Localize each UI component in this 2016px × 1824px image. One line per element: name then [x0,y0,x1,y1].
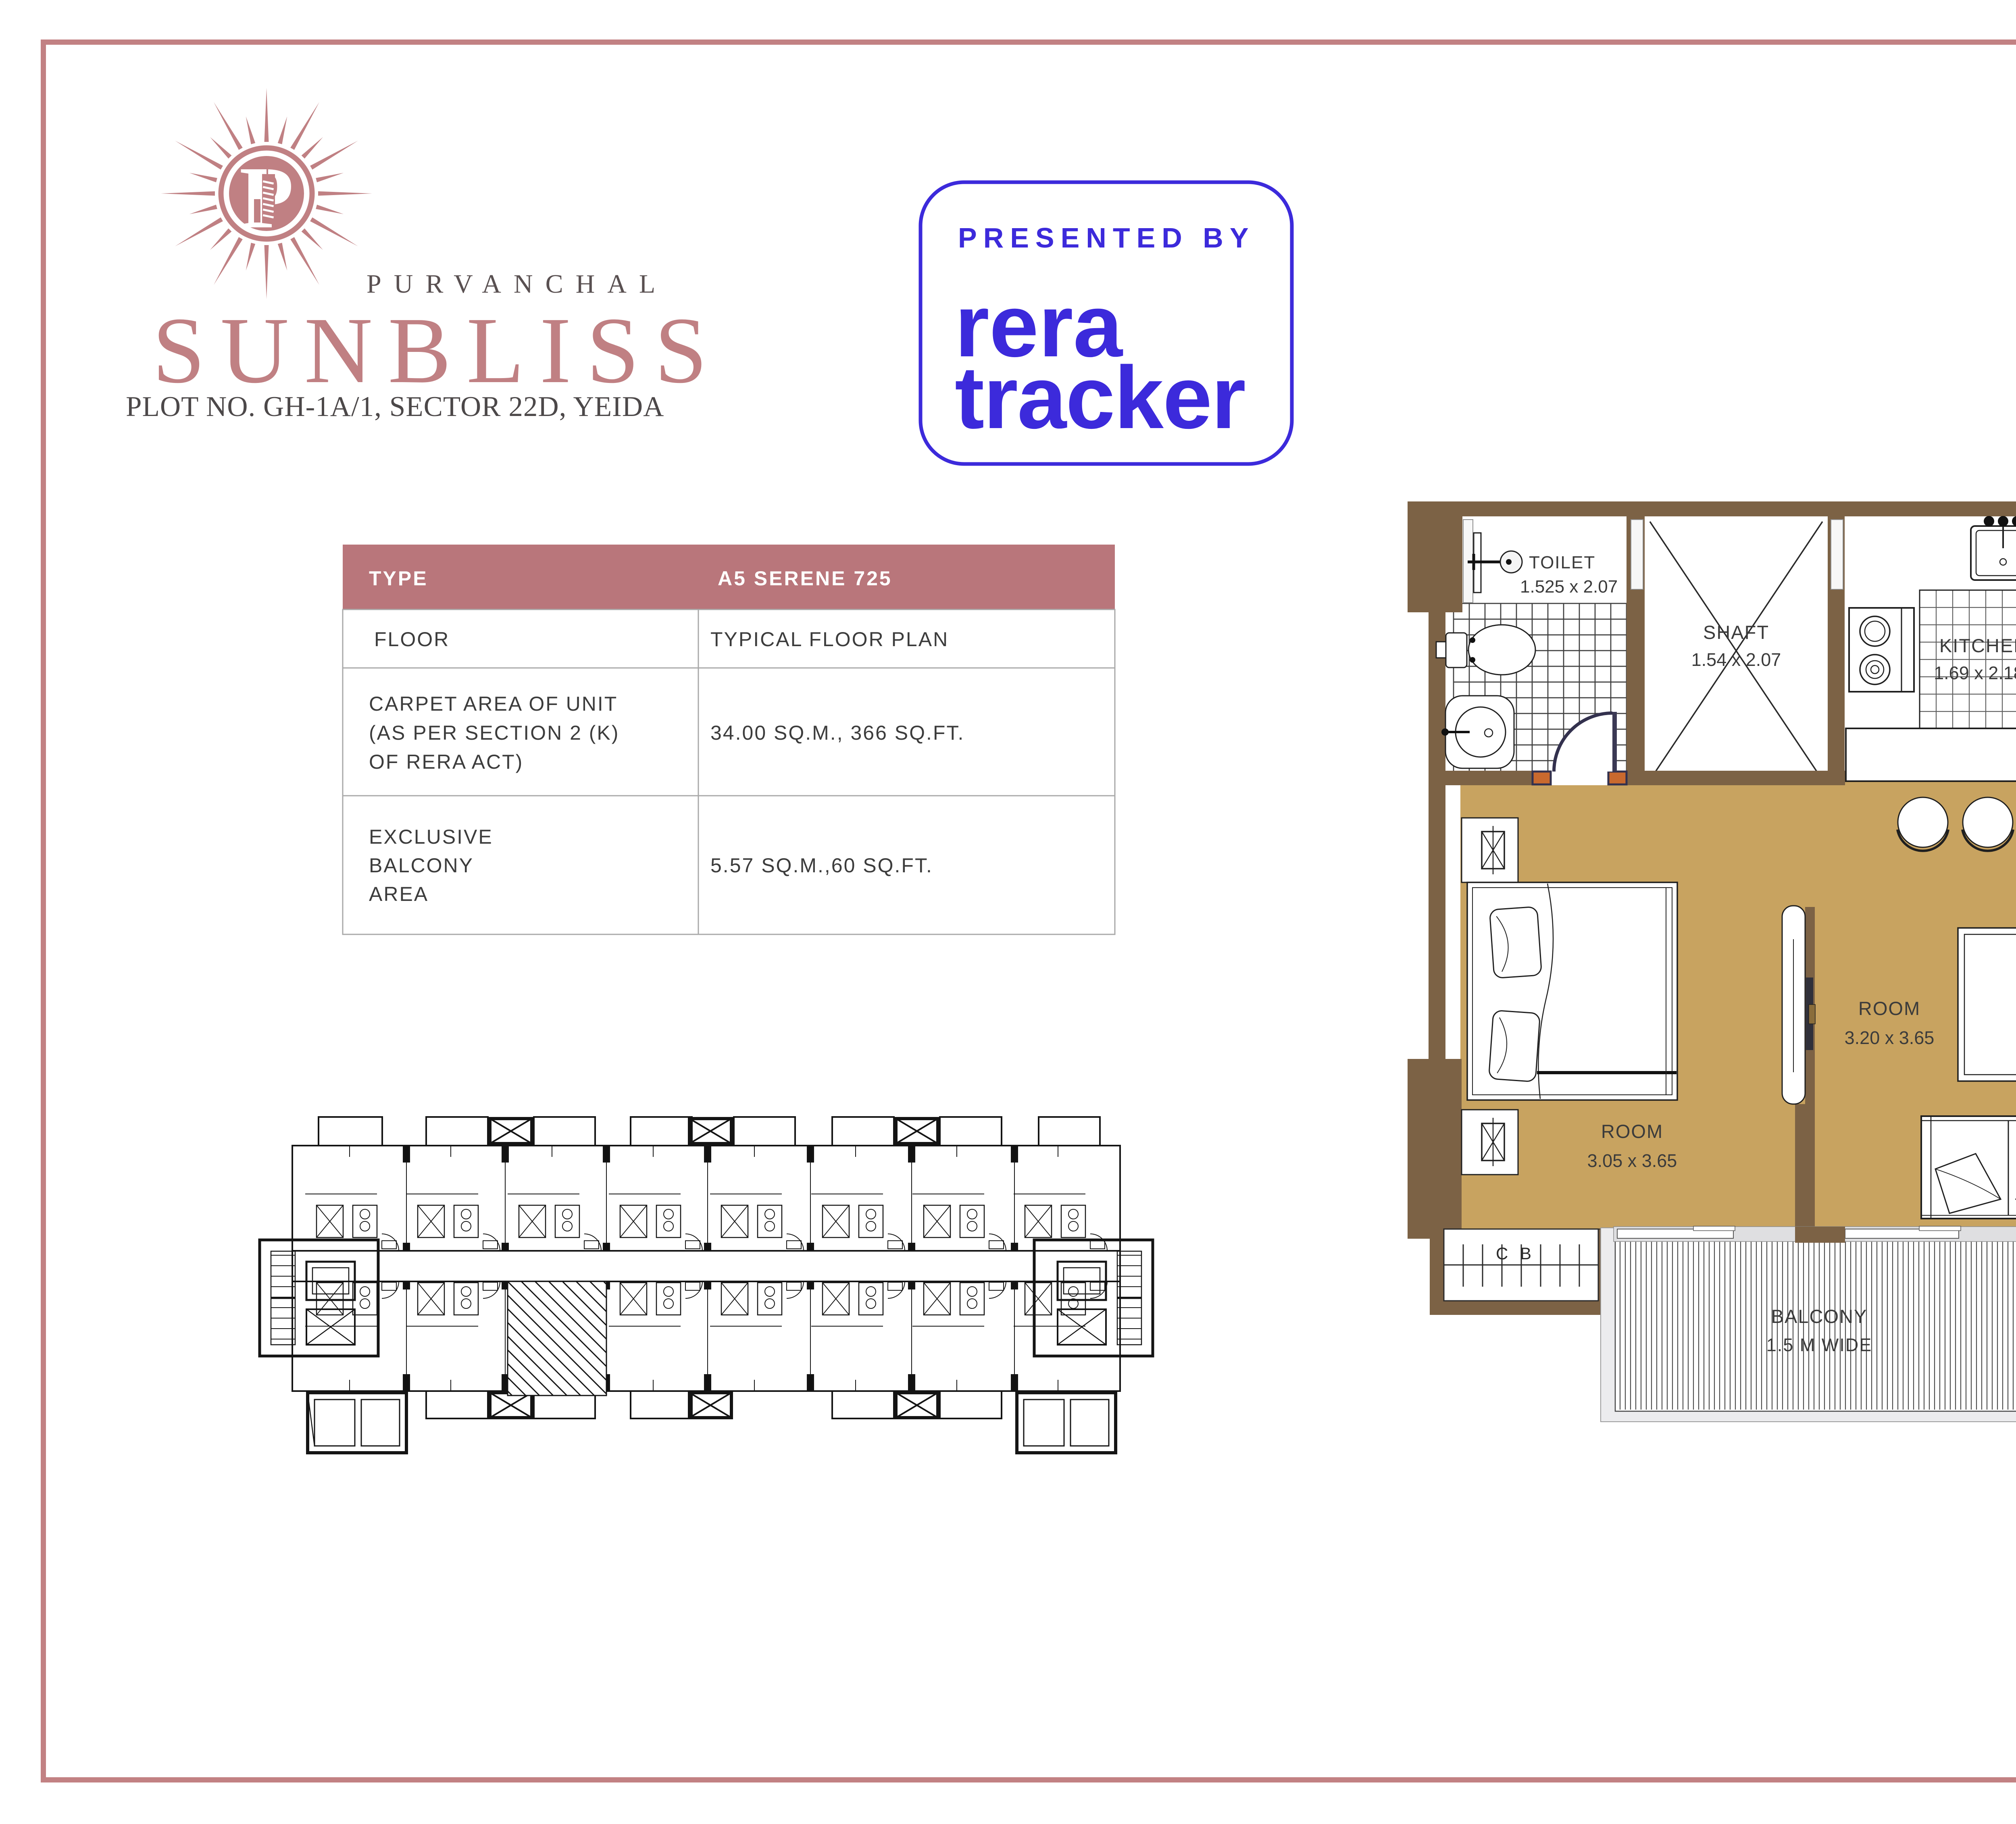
svg-text:5.57 SQ.M.,60 SQ.FT.: 5.57 SQ.M.,60 SQ.FT. [710,854,933,877]
svg-text:PRESENTED BY: PRESENTED BY [958,222,1255,254]
svg-text:EXCLUSIVE: EXCLUSIVE [369,826,493,848]
svg-text:TOILET: TOILET [1529,553,1595,572]
svg-text:TYPICAL FLOOR PLAN: TYPICAL FLOOR PLAN [710,628,949,651]
svg-text:ROOM: ROOM [1858,998,1920,1019]
svg-text:CARPET AREA OF UNIT: CARPET AREA OF UNIT [369,693,618,715]
svg-text:SUNBLISS: SUNBLISS [152,298,723,403]
svg-text:PLOT NO. GH-1A/1, SECTOR 22D,: PLOT NO. GH-1A/1, SECTOR 22D, YEIDA [126,391,664,422]
svg-text:OF RERA ACT): OF RERA ACT) [369,751,523,773]
svg-text:B: B [1520,1244,1531,1263]
svg-text:1.5 M WIDE: 1.5 M WIDE [1766,1335,1872,1355]
svg-text:1.69 x 2.185: 1.69 x 2.185 [1934,663,2016,683]
svg-text:3.20 x 3.65: 3.20 x 3.65 [1845,1027,1935,1048]
svg-text:PURVANCHAL: PURVANCHAL [367,269,668,299]
svg-text:BALCONY: BALCONY [369,854,474,877]
svg-text:1.54 x 2.07: 1.54 x 2.07 [1691,649,1781,670]
svg-text:A5 SERENE 725: A5 SERENE 725 [718,567,892,590]
svg-text:FLOOR: FLOOR [374,628,450,651]
svg-text:tracker: tracker [955,348,1245,447]
svg-text:BALCONY: BALCONY [1771,1306,1868,1327]
svg-text:TYPE: TYPE [369,567,428,590]
svg-text:SHAFT: SHAFT [1703,622,1769,643]
svg-text:ROOM: ROOM [1601,1121,1663,1142]
svg-text:(AS PER SECTION 2 (K): (AS PER SECTION 2 (K) [369,722,619,744]
svg-text:34.00 SQ.M., 366 SQ.FT.: 34.00 SQ.M., 366 SQ.FT. [710,722,964,744]
svg-text:3.05 x 3.65: 3.05 x 3.65 [1587,1150,1677,1171]
svg-text:1.525 x 2.07: 1.525 x 2.07 [1520,577,1618,597]
svg-text:AREA: AREA [369,883,429,905]
svg-text:KITCHEN: KITCHEN [1939,635,2016,656]
svg-text:C: C [1496,1244,1508,1263]
